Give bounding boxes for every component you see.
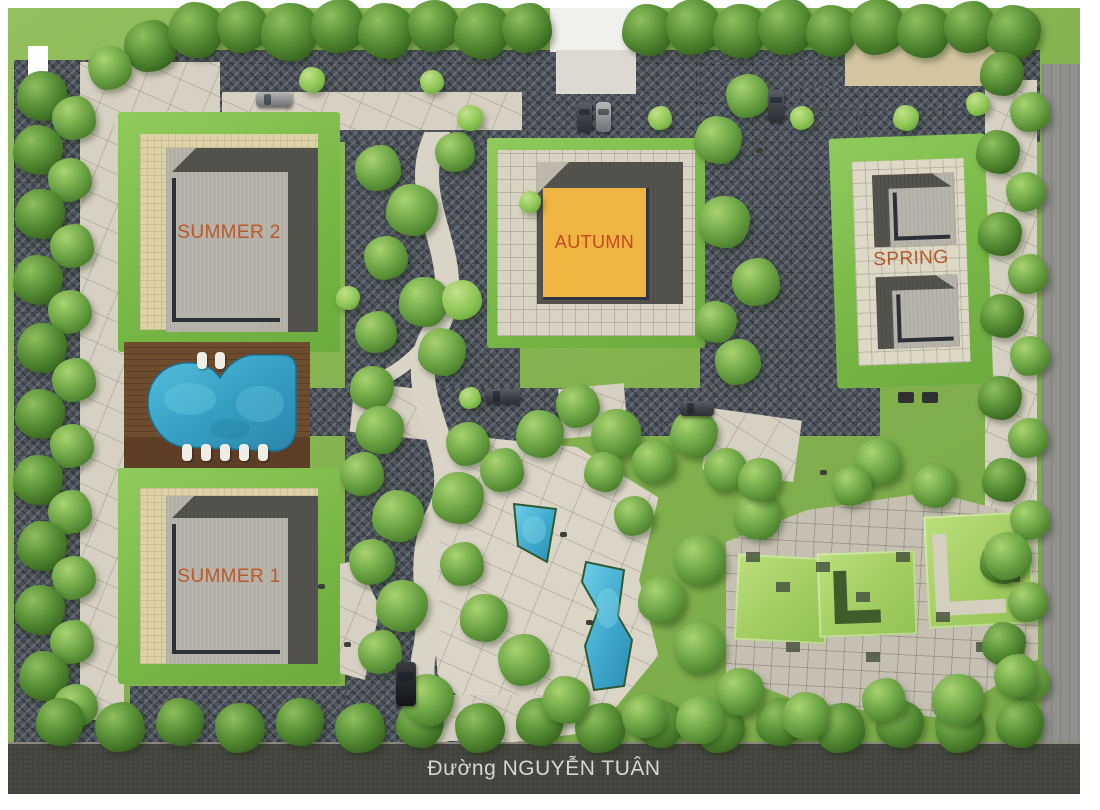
tree (912, 464, 956, 508)
tree (519, 191, 541, 213)
tower-roof-shadow (876, 274, 960, 349)
tree (1008, 418, 1048, 458)
car-windshield (264, 94, 271, 105)
roof-parapet-frame (896, 293, 954, 343)
tree (355, 311, 397, 353)
tree (435, 132, 475, 172)
tree (897, 4, 951, 58)
pool-lounger (201, 444, 211, 461)
hedge-cell (776, 582, 790, 592)
site-plan: Đường NGUYỄN TUÂN SUMMER 2 (0, 0, 1100, 810)
tree (542, 676, 590, 724)
pool-lounger (215, 352, 225, 369)
tree (980, 294, 1024, 338)
tree (52, 358, 96, 402)
tree (674, 534, 726, 586)
tree (976, 130, 1020, 174)
tree (648, 106, 672, 130)
tree (782, 692, 830, 740)
pool-lounger (197, 352, 207, 369)
roof-parapet-frame (172, 178, 280, 322)
road-east (1042, 64, 1080, 742)
building-roof-center: AUTUMN (543, 188, 649, 300)
tree (261, 3, 319, 61)
tree (358, 3, 414, 59)
pool-lounger (258, 444, 268, 461)
tree (168, 2, 224, 58)
tree (893, 105, 919, 131)
tree (632, 440, 676, 484)
tree (738, 458, 782, 502)
tree (694, 116, 742, 164)
bench (560, 532, 567, 537)
utility-structure (922, 392, 938, 403)
tree (980, 52, 1024, 96)
pool-lounger (182, 444, 192, 461)
bench (344, 642, 351, 647)
tree (457, 105, 483, 131)
hedge-cell (786, 642, 800, 652)
tree (622, 694, 666, 738)
tower-roof (892, 288, 960, 348)
tree (994, 654, 1038, 698)
tree (336, 286, 360, 310)
tree (480, 448, 524, 492)
building-roof (166, 518, 288, 664)
roof-parapet-frame (172, 524, 280, 654)
roof-parapet-frame (893, 191, 951, 241)
tree (440, 542, 484, 586)
bench (820, 470, 827, 475)
tree (418, 328, 466, 376)
car (396, 662, 416, 706)
tree (996, 700, 1044, 748)
tree (676, 696, 724, 744)
car-windshield (398, 672, 414, 681)
car-windshield (687, 403, 694, 414)
pool-lounger (220, 444, 230, 461)
building-summer1: SUMMER 1 (118, 468, 340, 684)
tree (350, 366, 394, 410)
building-spring: SPRING (829, 133, 994, 388)
hedge-cell (856, 592, 870, 602)
car-windshield (579, 109, 590, 115)
car (486, 389, 520, 404)
tree (862, 678, 906, 722)
building-label-summer1: SUMMER 1 (118, 566, 340, 588)
tree (335, 703, 385, 753)
tree (355, 145, 401, 191)
building-label-autumn: AUTUMN (543, 232, 646, 253)
tree (987, 5, 1041, 59)
tree (932, 674, 984, 726)
building-roof (166, 172, 288, 332)
tree (52, 96, 96, 140)
car (680, 401, 714, 416)
tree (584, 452, 624, 492)
tree (502, 3, 552, 53)
car (256, 92, 292, 107)
tree (156, 698, 204, 746)
tree (299, 67, 325, 93)
tree (311, 0, 365, 53)
tree (982, 458, 1026, 502)
tree (50, 224, 94, 268)
building-autumn: AUTUMN (487, 138, 705, 348)
tree (698, 196, 750, 248)
tree (695, 301, 737, 343)
entrance-apron-north (556, 50, 636, 94)
tree (376, 580, 428, 632)
car (596, 102, 611, 132)
tree (95, 702, 145, 752)
road-nguyen-tuan: Đường NGUYỄN TUÂN (8, 742, 1080, 794)
tower-roof-shadow (872, 172, 956, 247)
building-label-summer2: SUMMER 2 (118, 222, 340, 244)
tower-roof (888, 186, 956, 246)
tree (356, 406, 404, 454)
hedge-cell (866, 652, 880, 662)
tree (1010, 92, 1050, 132)
tree (978, 376, 1022, 420)
tree (732, 258, 780, 306)
car-windshield (598, 109, 609, 115)
utility-structure (898, 392, 914, 403)
tree (716, 668, 764, 716)
hedge-cell (936, 612, 950, 622)
building-summer2: SUMMER 2 (118, 112, 340, 352)
car (577, 102, 592, 132)
bench (586, 620, 593, 625)
tree (638, 576, 686, 624)
tree (386, 184, 438, 236)
car-windshield (770, 97, 782, 103)
bench (756, 148, 763, 153)
tree (372, 490, 424, 542)
tree (432, 472, 484, 524)
tree (670, 410, 718, 458)
hedge-l (835, 610, 881, 625)
street-name-label: Đường NGUYỄN TUÂN (8, 757, 1080, 781)
tree (340, 452, 384, 496)
tree (36, 698, 84, 746)
tree (978, 212, 1022, 256)
pool-lounger (239, 444, 249, 461)
tree (1008, 254, 1048, 294)
hedge-cell (746, 552, 760, 562)
hedge-cell (896, 552, 910, 562)
bench (318, 584, 325, 589)
hedge-cell (816, 562, 830, 572)
tree (459, 387, 481, 409)
tree (276, 698, 324, 746)
tree (1008, 582, 1048, 622)
car-windshield (493, 391, 500, 402)
tree (460, 594, 508, 642)
tree (516, 410, 564, 458)
car (768, 90, 784, 122)
